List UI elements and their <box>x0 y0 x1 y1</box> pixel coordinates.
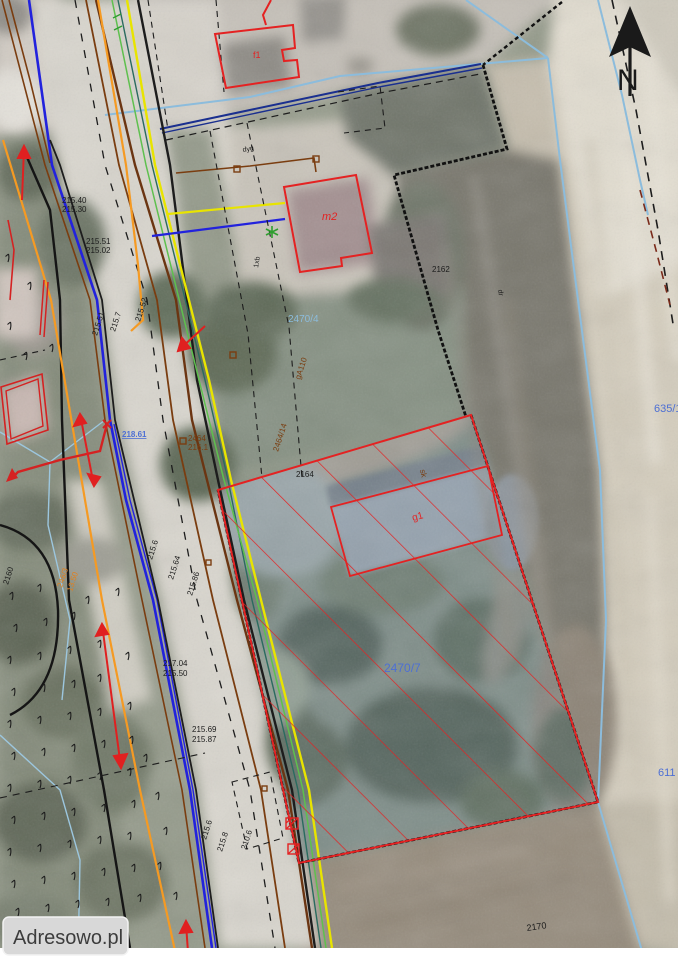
svg-text:635/1: 635/1 <box>654 403 678 415</box>
svg-text:215.50: 215.50 <box>163 669 188 678</box>
svg-text:N: N <box>617 64 639 97</box>
svg-text:m2: m2 <box>322 211 337 223</box>
svg-text:215.87: 215.87 <box>192 735 217 744</box>
svg-text:2470/4: 2470/4 <box>288 314 319 325</box>
svg-text:Adresowo.pl: Adresowo.pl <box>13 927 123 949</box>
svg-text:215.30: 215.30 <box>62 205 87 214</box>
svg-text:215.51: 215.51 <box>86 237 111 246</box>
svg-text:216.1: 216.1 <box>188 443 209 452</box>
svg-text:611: 611 <box>658 767 676 779</box>
svg-text:217.04: 217.04 <box>163 659 188 668</box>
svg-text:215.40: 215.40 <box>62 196 87 205</box>
svg-text:2162: 2162 <box>432 265 450 274</box>
svg-text:2470/7: 2470/7 <box>384 661 421 675</box>
svg-text:2464: 2464 <box>188 434 206 443</box>
svg-text:2164: 2164 <box>296 470 314 479</box>
svg-text:215.02: 215.02 <box>86 246 111 255</box>
svg-text:215.69: 215.69 <box>192 725 217 734</box>
svg-text:f1: f1 <box>253 50 261 60</box>
svg-text:218.61: 218.61 <box>122 430 147 439</box>
